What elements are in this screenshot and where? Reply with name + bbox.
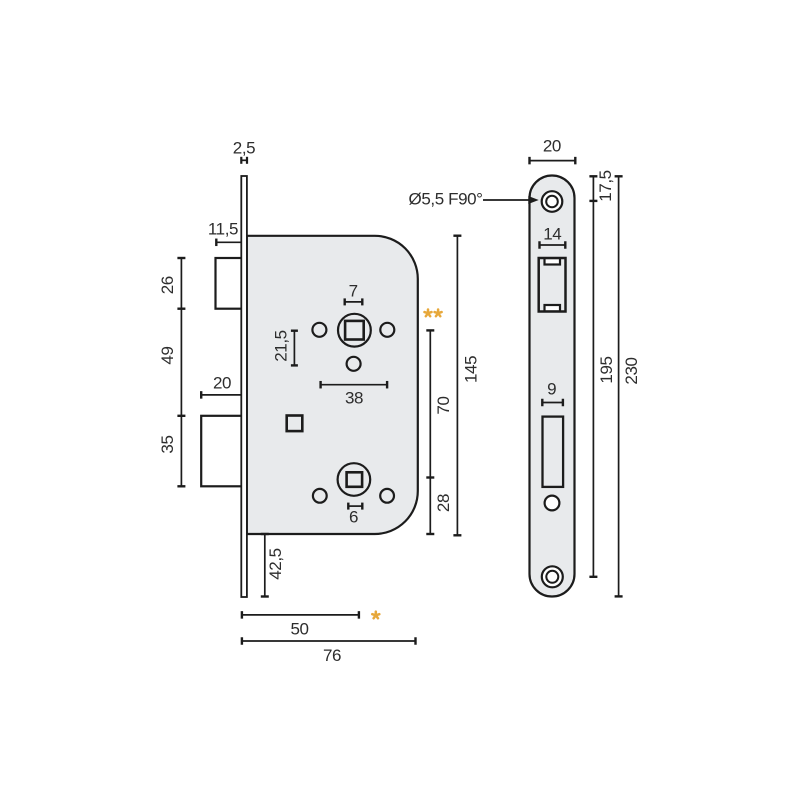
svg-text:11,5: 11,5 xyxy=(208,220,238,239)
svg-text:70: 70 xyxy=(434,396,453,414)
svg-text:7: 7 xyxy=(349,282,358,301)
svg-text:145: 145 xyxy=(462,356,481,383)
svg-text:195: 195 xyxy=(597,356,616,383)
svg-text:38: 38 xyxy=(345,389,363,408)
svg-text:Ø5,5 F90°: Ø5,5 F90° xyxy=(409,190,483,209)
svg-text:26: 26 xyxy=(158,276,177,294)
svg-text:14: 14 xyxy=(543,225,561,244)
svg-text:49: 49 xyxy=(158,346,177,364)
svg-text:76: 76 xyxy=(323,646,341,665)
svg-text:50: 50 xyxy=(290,620,308,639)
svg-text:6: 6 xyxy=(349,508,358,527)
svg-text:21,5: 21,5 xyxy=(272,330,291,362)
svg-text:9: 9 xyxy=(547,380,556,399)
svg-text:35: 35 xyxy=(158,435,177,453)
svg-text:42,5: 42,5 xyxy=(266,548,285,580)
svg-text:17,5: 17,5 xyxy=(596,170,615,202)
svg-text:28: 28 xyxy=(434,494,453,512)
svg-text:230: 230 xyxy=(622,357,641,384)
svg-text:20: 20 xyxy=(543,137,561,156)
svg-text:20: 20 xyxy=(213,374,231,393)
svg-text:2,5: 2,5 xyxy=(233,139,255,158)
